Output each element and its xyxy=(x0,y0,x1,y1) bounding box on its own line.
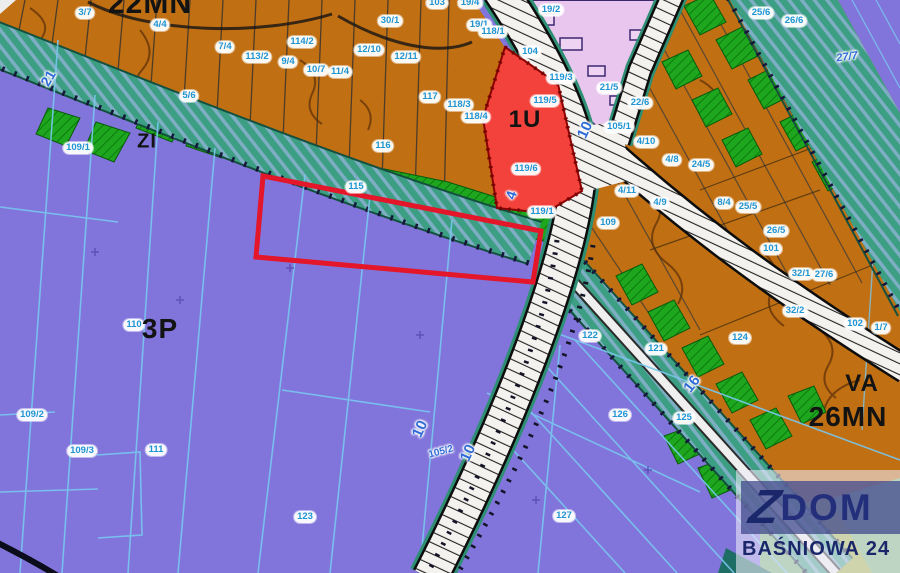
brand-z-glyph: Z xyxy=(746,488,782,528)
zoning-map[interactable]: 3/74/47/4113/29/4114/230/112/1012/1110/7… xyxy=(0,0,900,573)
brand-band: Z DOM xyxy=(741,481,900,534)
brand-name: DOM xyxy=(780,488,872,528)
brand-subtitle: BAŚNIOWA 24 xyxy=(742,538,890,561)
watermark-logo: Z DOM BAŚNIOWA 24 xyxy=(736,470,900,573)
